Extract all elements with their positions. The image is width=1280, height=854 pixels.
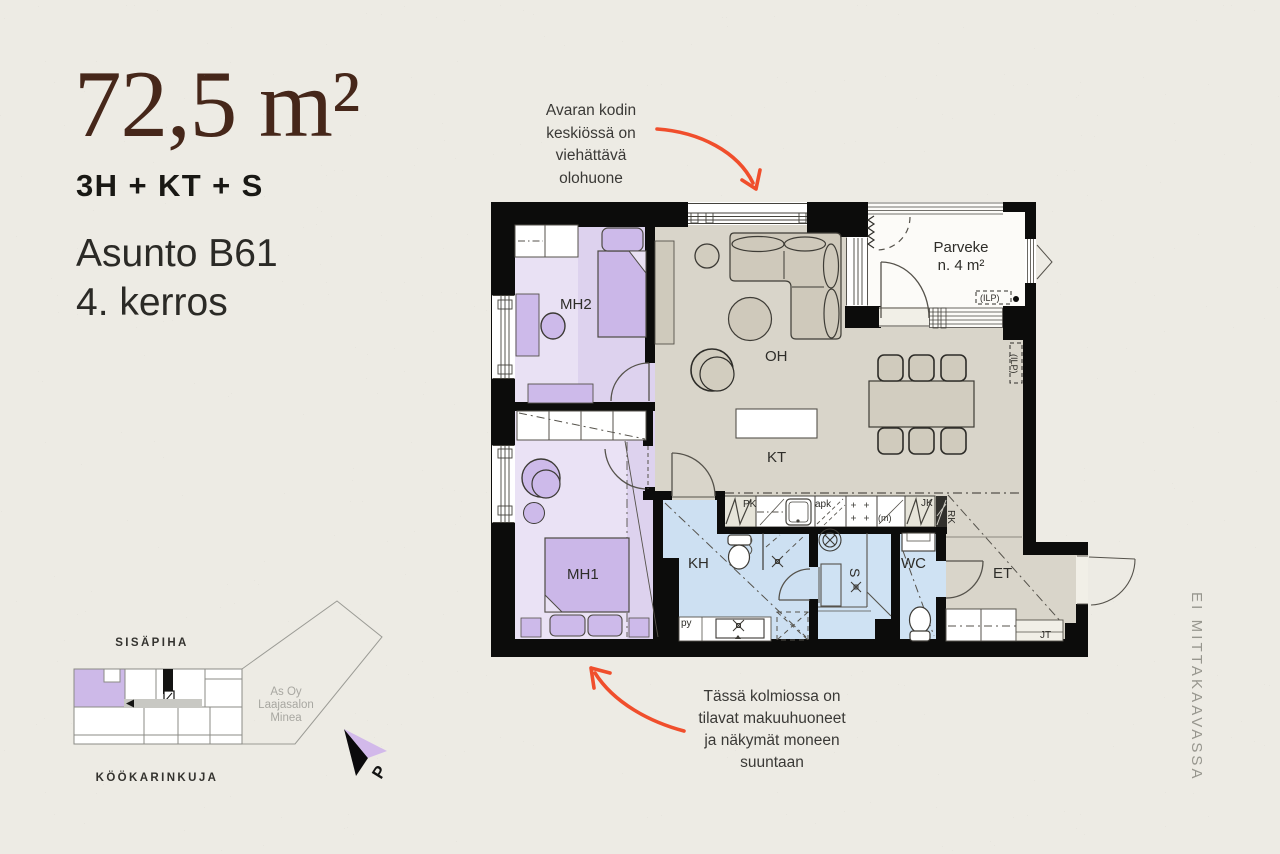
svg-text:KÖÖKARINKUJA: KÖÖKARINKUJA	[96, 771, 219, 784]
svg-text:Minea: Minea	[270, 712, 302, 724]
svg-text:(ILP): (ILP)	[1009, 354, 1019, 374]
svg-text:As Oy: As Oy	[270, 686, 302, 698]
svg-text:Laajasalon: Laajasalon	[258, 699, 314, 711]
svg-text:PK: PK	[743, 499, 757, 510]
svg-text:EI MITTAKAAVASSA: EI MITTAKAAVASSA	[1188, 592, 1205, 782]
svg-text:(m): (m)	[878, 513, 892, 523]
svg-text:JK: JK	[921, 498, 933, 509]
svg-text:n. 4 m²: n. 4 m²	[938, 257, 985, 274]
svg-text:WC: WC	[901, 555, 926, 572]
svg-text:RK: RK	[945, 510, 956, 524]
svg-text:OH: OH	[765, 348, 788, 365]
svg-text:KT: KT	[767, 449, 786, 466]
svg-text:Parveke: Parveke	[933, 239, 988, 256]
svg-text:S: S	[847, 568, 863, 577]
svg-text:apk: apk	[815, 499, 832, 510]
svg-text:py: py	[681, 618, 692, 629]
svg-text:JT: JT	[1040, 630, 1051, 641]
svg-text:SISÄPIHA: SISÄPIHA	[115, 636, 189, 649]
svg-text:ET: ET	[993, 565, 1012, 582]
svg-text:MH2: MH2	[560, 296, 592, 313]
svg-text:MH1: MH1	[567, 566, 599, 583]
svg-text:KH: KH	[688, 555, 709, 572]
svg-text:(ILP): (ILP)	[980, 293, 1000, 303]
